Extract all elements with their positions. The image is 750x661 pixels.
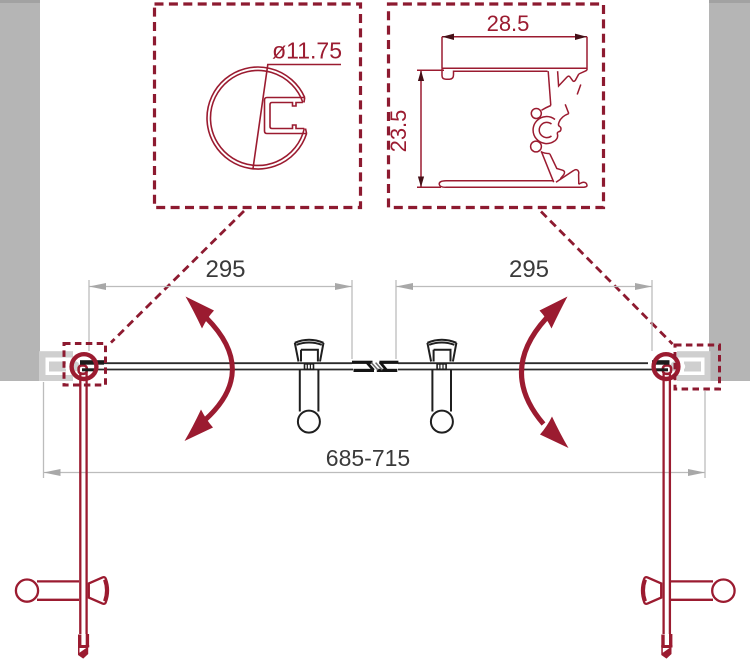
svg-text:28.5: 28.5 [487,11,530,36]
svg-text:685-715: 685-715 [326,445,410,471]
svg-text:23.5: 23.5 [386,110,411,153]
svg-text:ø11.75: ø11.75 [272,38,342,64]
svg-text:295: 295 [205,256,245,283]
svg-text:295: 295 [509,256,549,283]
